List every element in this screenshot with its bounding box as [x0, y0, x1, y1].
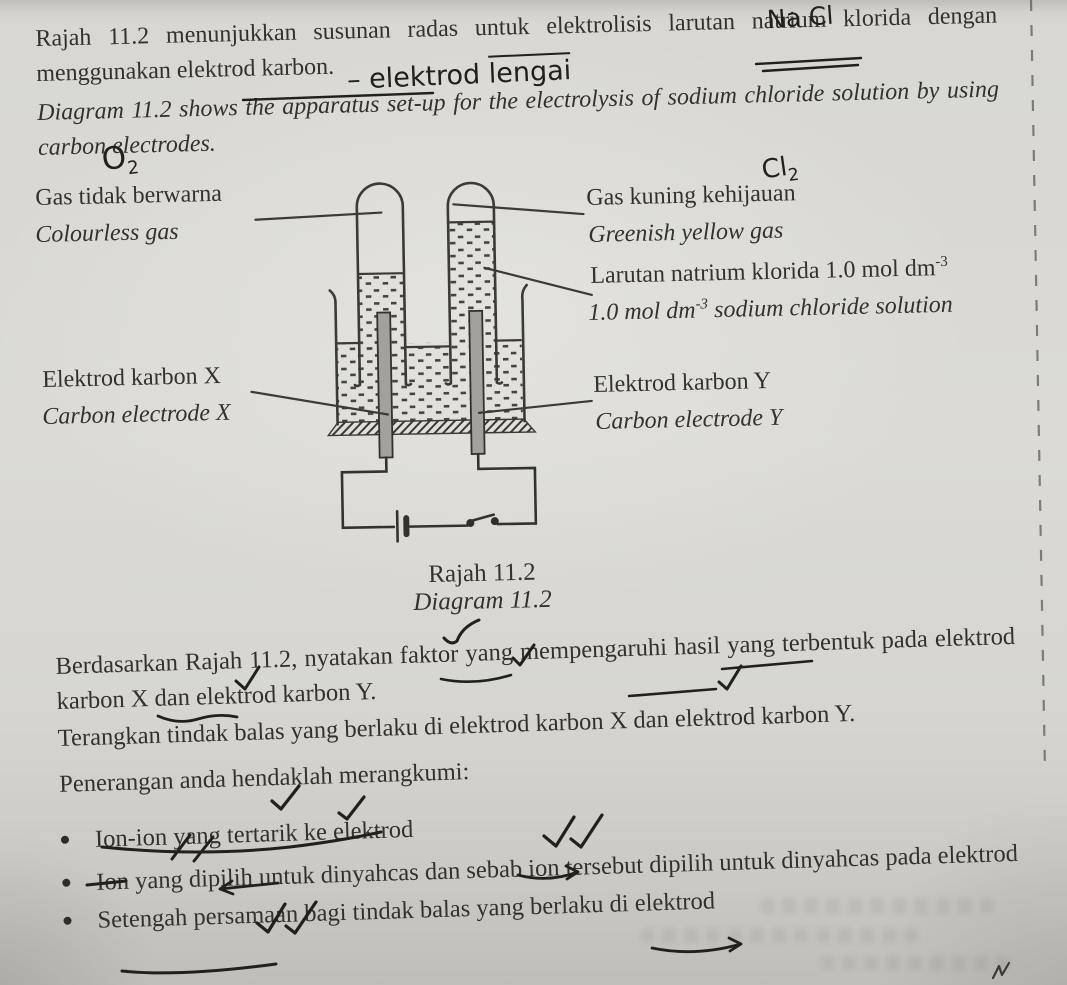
- underline-karbon-y: [629, 689, 716, 696]
- arc-under-sebab-ion: [518, 866, 578, 879]
- stray-mark-bottom-right: [993, 963, 1009, 978]
- slashes-bullet-1: [172, 835, 213, 861]
- scanned-exam-page: { "title": { "intro_ms": "Rajah 11.2 men…: [0, 0, 1067, 985]
- underline-shows-apparatus: [243, 93, 433, 100]
- underline-natrium-klorida: [756, 58, 861, 71]
- checks-bullet-1: [272, 786, 364, 819]
- checks-above-sebab: [544, 815, 602, 847]
- check-after-rajah: [236, 667, 259, 689]
- arrow-under-di-elektrod: [652, 938, 741, 952]
- underline-ion: [87, 881, 126, 885]
- underline-karbon-x: [158, 715, 237, 721]
- underline-hasil: [722, 661, 812, 669]
- underline-faktor: [441, 675, 511, 682]
- check-below-caption: [444, 620, 479, 643]
- underline-bullet-1: [102, 832, 381, 852]
- fold-dashed-line: [1031, 0, 1045, 772]
- arrow-under-dipilih: [220, 881, 278, 894]
- checks-above-persamaan: [257, 902, 316, 933]
- underline-bullet-3: [122, 964, 276, 973]
- pen-annotations-overlay: [0, 0, 1067, 985]
- check-after-faktor: [513, 645, 534, 665]
